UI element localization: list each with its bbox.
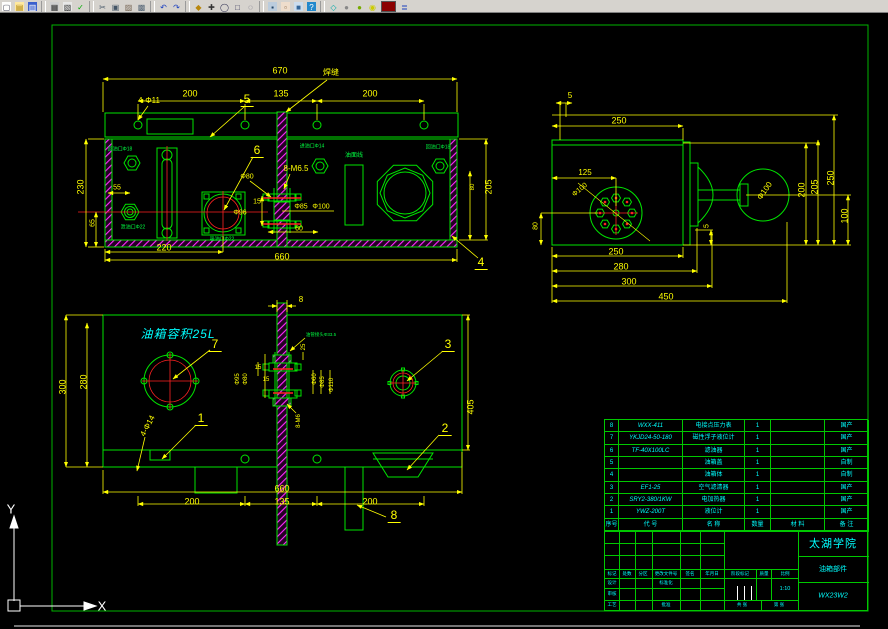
new-file-icon[interactable]: ▢ bbox=[1, 1, 12, 12]
col-header-code: 代 号 bbox=[619, 519, 683, 532]
port-label-return-left: 回油口Φ18 bbox=[108, 148, 133, 153]
stage-tick bbox=[751, 586, 752, 600]
part-code bbox=[619, 457, 683, 469]
dim-phi60: Φ60 bbox=[312, 373, 318, 384]
dim-5-top: 5 bbox=[568, 92, 572, 100]
orbit-icon[interactable]: ◉ bbox=[367, 1, 378, 12]
named-views-icon[interactable]: ● bbox=[341, 1, 352, 12]
dim-4xphi11: 4-Φ11 bbox=[138, 97, 160, 105]
dim-phi80: Φ80 bbox=[240, 174, 253, 181]
label-craft: 工艺 bbox=[608, 602, 617, 608]
balloon-5: 5 bbox=[241, 93, 254, 107]
port-label-inlet: 进油口Φ14 bbox=[300, 145, 325, 150]
part-qty: 1 bbox=[745, 420, 771, 432]
toolbar-separator bbox=[89, 1, 94, 12]
tool-palettes-icon[interactable]: ■ bbox=[293, 1, 304, 12]
dim-230: 230 bbox=[77, 179, 86, 194]
port-label-return-right: 回油口Φ18 bbox=[426, 146, 451, 151]
dim-205-right: 205 bbox=[811, 179, 820, 194]
label-approve: 批准 bbox=[662, 602, 671, 608]
part-qty: 1 bbox=[745, 506, 771, 518]
label-weight: 质量 bbox=[760, 571, 769, 577]
dim-200-left: 200 bbox=[182, 90, 197, 99]
dim-280: 280 bbox=[613, 263, 628, 272]
toolbar-separator bbox=[41, 1, 46, 12]
save-icon[interactable]: ▥ bbox=[27, 1, 38, 12]
part-remark: 自制 bbox=[825, 457, 869, 469]
label-scale: 比例 bbox=[781, 571, 790, 577]
dim-phi95: Φ95 bbox=[235, 373, 241, 384]
grid-line bbox=[771, 569, 772, 600]
toolbar-separator bbox=[320, 1, 325, 12]
dim-405: 405 bbox=[467, 399, 476, 414]
balloon-4: 4 bbox=[475, 256, 488, 270]
label-signature: 签名 bbox=[686, 571, 695, 577]
paste-icon[interactable]: ▨ bbox=[123, 1, 134, 12]
dim-15a: 15 bbox=[255, 365, 262, 371]
grid-line bbox=[652, 531, 653, 611]
grid-line bbox=[619, 531, 620, 611]
cad-application-window: ▢ ▤ ▥ ▦ ▧ ✓ ✂ ▣ ▨ ▩ ↶ ↷ ◆ ✚ ◯ □ ◌ ▪ ▫ ■ … bbox=[0, 0, 888, 629]
part-material bbox=[771, 469, 825, 481]
cut-icon[interactable]: ✂ bbox=[97, 1, 108, 12]
drawing-title: 油箱部件 bbox=[819, 564, 847, 574]
dim-660: 660 bbox=[274, 253, 289, 262]
part-remark: 国产 bbox=[825, 420, 869, 432]
part-no: 3 bbox=[605, 482, 619, 494]
dim-670: 670 bbox=[272, 67, 287, 76]
zoom-window-icon[interactable]: □ bbox=[232, 1, 243, 12]
school-name: 太湖学院 bbox=[809, 535, 857, 551]
part-qty: 1 bbox=[745, 494, 771, 506]
dim-8: 8 bbox=[299, 296, 303, 304]
grid-line bbox=[798, 582, 869, 583]
part-remark: 国产 bbox=[825, 445, 869, 457]
part-code: EF1-25 bbox=[619, 482, 683, 494]
dim-phi85-front: Φ85 bbox=[320, 376, 326, 387]
label-zone: 分区 bbox=[639, 571, 648, 577]
shade-icon[interactable]: ● bbox=[354, 1, 365, 12]
label-standardization: 标准化 bbox=[659, 580, 673, 586]
grid-line bbox=[756, 569, 757, 600]
dim-300: 300 bbox=[621, 278, 636, 287]
dim-100-right: 100 bbox=[841, 208, 850, 223]
grid-line bbox=[798, 531, 799, 611]
part-material bbox=[771, 506, 825, 518]
col-header-name: 名 称 bbox=[683, 519, 745, 532]
dim-250-top: 250 bbox=[611, 117, 626, 126]
dim-660-front: 660 bbox=[274, 485, 289, 494]
dim-8-m6.5: 8-M6.5 bbox=[284, 165, 309, 173]
label-sheet-no: 第 张 bbox=[774, 602, 784, 608]
ucs-y-label: Y bbox=[7, 503, 16, 516]
dim-200b-front: 200 bbox=[362, 498, 377, 507]
label-mark: 标记 bbox=[608, 571, 617, 577]
part-remark: 国产 bbox=[825, 432, 869, 444]
dim-200a-front: 200 bbox=[184, 498, 199, 507]
part-code: YWZ-200T bbox=[619, 506, 683, 518]
dim-220: 220 bbox=[156, 244, 171, 253]
part-qty: 1 bbox=[745, 432, 771, 444]
grid-line bbox=[724, 531, 725, 611]
weld-label: 焊缝 bbox=[323, 69, 339, 77]
grid-line bbox=[605, 600, 798, 601]
label-stage-mark: 阶段标记 bbox=[731, 571, 749, 577]
part-name: 空气滤清器 bbox=[683, 482, 745, 494]
dim-phi96: Φ96 bbox=[233, 210, 246, 217]
part-name: 电加热器 bbox=[683, 494, 745, 506]
dim-8-m6: 8-M6 bbox=[296, 414, 302, 428]
label-design: 设计 bbox=[608, 580, 617, 586]
col-header-material: 材 料 bbox=[771, 519, 825, 532]
grid-line bbox=[605, 578, 798, 579]
dim-15: 15 bbox=[253, 199, 261, 206]
drawing-number: WX23W2 bbox=[818, 593, 848, 600]
insert-hyperlink-icon[interactable]: ◆ bbox=[193, 1, 204, 12]
toolbar: ▢ ▤ ▥ ▦ ▧ ✓ ✂ ▣ ▨ ▩ ↶ ↷ ◆ ✚ ◯ □ ◌ ▪ ▫ ■ … bbox=[0, 0, 888, 13]
stage-tick bbox=[744, 586, 745, 600]
part-no: 7 bbox=[605, 432, 619, 444]
dim-135-front: 135 bbox=[274, 498, 289, 507]
part-name: 磁性浮子液位计 bbox=[683, 432, 745, 444]
help-icon[interactable]: ? bbox=[306, 1, 317, 12]
dim-200-right: 200 bbox=[362, 90, 377, 99]
dim-300-left: 300 bbox=[59, 379, 68, 394]
grid-line bbox=[605, 569, 798, 570]
part-code bbox=[619, 469, 683, 481]
part-code: WXX-411 bbox=[619, 420, 683, 432]
balloon-2: 2 bbox=[439, 422, 452, 436]
spell-icon[interactable]: ✓ bbox=[75, 1, 86, 12]
part-name: 油箱体 bbox=[683, 469, 745, 481]
layer-color-swatch[interactable] bbox=[381, 1, 396, 12]
ucs-icon-toggle[interactable]: ◇ bbox=[328, 1, 339, 12]
part-remark: 国产 bbox=[825, 506, 869, 518]
port-label-suction: 吸油口Φ22 bbox=[210, 238, 235, 243]
part-no: 1 bbox=[605, 506, 619, 518]
part-remark: 国产 bbox=[825, 494, 869, 506]
balloon-6: 6 bbox=[251, 144, 264, 158]
dim-200-right: 200 bbox=[798, 182, 807, 197]
part-material bbox=[771, 457, 825, 469]
col-header-qty: 数量 bbox=[745, 519, 771, 532]
label-date: 年月日 bbox=[705, 571, 719, 577]
plot-preview-icon[interactable]: ▧ bbox=[62, 1, 73, 12]
dim-phi80-front: Φ80 bbox=[243, 373, 249, 384]
grid-line bbox=[680, 531, 681, 611]
properties-icon[interactable]: ▪ bbox=[267, 1, 278, 12]
tank-capacity-note: 油箱容积25L bbox=[140, 328, 215, 340]
title-block: 标记 处数 分区 更改文件号 签名 年月日 设计 标准化 审核 工艺 批准 阶段… bbox=[604, 531, 868, 611]
label-count: 处数 bbox=[623, 571, 632, 577]
toolbar-separator bbox=[259, 1, 264, 12]
scale-value: 1:10 bbox=[780, 586, 791, 592]
part-name: 滤油器 bbox=[683, 445, 745, 457]
part-material bbox=[771, 432, 825, 444]
dim-phi85: Φ85 bbox=[294, 204, 307, 211]
part-name: 油箱盖 bbox=[683, 457, 745, 469]
dim-80: 80 bbox=[470, 184, 476, 191]
dim-60: 60 bbox=[295, 226, 303, 233]
pipe-joint-note: 油管接头Φ33.5 bbox=[306, 333, 336, 338]
part-remark: 国产 bbox=[825, 482, 869, 494]
label-change-file: 更改文件号 bbox=[655, 571, 678, 577]
dim-phi100: Φ100 bbox=[312, 204, 329, 211]
balloon-3: 3 bbox=[442, 338, 455, 352]
copy-icon[interactable]: ▣ bbox=[110, 1, 121, 12]
dim-450: 450 bbox=[658, 293, 673, 302]
part-material bbox=[771, 494, 825, 506]
dim-5-bottom: 5 bbox=[704, 224, 711, 228]
oil-level-label: 油面线 bbox=[345, 153, 363, 159]
dim-205: 205 bbox=[485, 179, 494, 194]
label-sheet-total: 共 张 bbox=[737, 602, 747, 608]
grid-line bbox=[605, 543, 724, 544]
stage-tick bbox=[737, 586, 738, 600]
dim-250-right: 250 bbox=[827, 170, 836, 185]
dim-25: 25 bbox=[301, 344, 307, 351]
grid-line bbox=[798, 556, 869, 557]
part-no: 8 bbox=[605, 420, 619, 432]
text-style-icon[interactable]: ≣ bbox=[399, 1, 410, 12]
part-code: YKJD24-50-180 bbox=[619, 432, 683, 444]
ucs-x-label: X bbox=[98, 600, 107, 613]
part-qty: 1 bbox=[745, 469, 771, 481]
balloon-7: 7 bbox=[209, 338, 222, 352]
part-material bbox=[771, 445, 825, 457]
part-no: 2 bbox=[605, 494, 619, 506]
dim-phi110: Φ110 bbox=[329, 378, 335, 392]
label-check: 审核 bbox=[608, 591, 617, 597]
toolbar-separator bbox=[150, 1, 155, 12]
port-label-drain: 泄油口Φ22 bbox=[121, 226, 146, 231]
col-header-seq: 序号 bbox=[605, 519, 619, 532]
toolbar-separator bbox=[185, 1, 190, 12]
part-qty: 1 bbox=[745, 482, 771, 494]
zoom-realtime-icon[interactable]: ◯ bbox=[219, 1, 230, 12]
dim-65: 65 bbox=[90, 219, 97, 227]
grid-line bbox=[761, 600, 762, 611]
part-material bbox=[771, 420, 825, 432]
grid-line bbox=[700, 531, 701, 611]
part-name: 电接点压力表 bbox=[683, 420, 745, 432]
grid-line bbox=[605, 588, 724, 589]
part-no: 6 bbox=[605, 445, 619, 457]
balloon-1: 1 bbox=[195, 412, 208, 426]
design-center-icon[interactable]: ▫ bbox=[280, 1, 291, 12]
dim-55: 55 bbox=[113, 185, 121, 192]
balloon-8: 8 bbox=[388, 509, 401, 523]
grid-line bbox=[605, 555, 724, 556]
part-code: TF-40X100LC bbox=[619, 445, 683, 457]
undo-icon[interactable]: ↶ bbox=[158, 1, 169, 12]
dim-280-left: 280 bbox=[80, 374, 89, 389]
part-qty: 1 bbox=[745, 457, 771, 469]
redo-icon[interactable]: ↷ bbox=[171, 1, 182, 12]
part-qty: 1 bbox=[745, 445, 771, 457]
part-material bbox=[771, 482, 825, 494]
zoom-previous-icon[interactable]: ◌ bbox=[245, 1, 256, 12]
part-no: 5 bbox=[605, 457, 619, 469]
part-code: SRY2-380/1KW bbox=[619, 494, 683, 506]
dim-135: 135 bbox=[273, 90, 288, 99]
parts-table: 8WXX-411电接点压力表1国产 7YKJD24-50-180磁性浮子液位计1… bbox=[604, 419, 868, 531]
open-file-icon[interactable]: ▤ bbox=[14, 1, 25, 12]
part-no: 4 bbox=[605, 469, 619, 481]
part-name: 液位计 bbox=[683, 506, 745, 518]
col-header-remark: 备 注 bbox=[825, 519, 869, 532]
pan-icon[interactable]: ✚ bbox=[206, 1, 217, 12]
dim-15b: 15 bbox=[263, 377, 270, 383]
grid-line bbox=[635, 531, 636, 611]
dim-80-side: 80 bbox=[533, 222, 540, 230]
plot-icon[interactable]: ▦ bbox=[49, 1, 60, 12]
match-properties-icon[interactable]: ▩ bbox=[136, 1, 147, 12]
dim-125: 125 bbox=[578, 169, 591, 177]
dim-250-bottom: 250 bbox=[608, 248, 623, 257]
part-remark: 自制 bbox=[825, 469, 869, 481]
